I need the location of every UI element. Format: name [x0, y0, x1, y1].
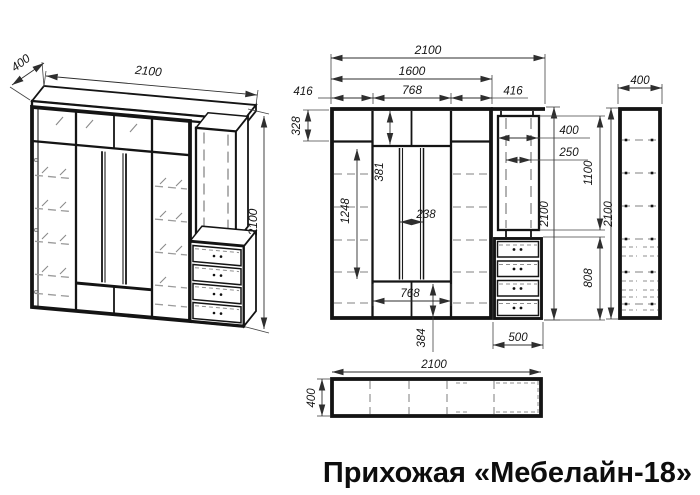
technical-drawing: 400 2100 2100 [0, 0, 700, 495]
blueprint-page: 400 2100 2100 [0, 0, 700, 495]
side-view: 400 2100 [603, 75, 662, 319]
dim-front-main-width: 1600 [399, 64, 426, 78]
front-drawer-unit [495, 239, 542, 319]
dim-front-mirror-col: 1248 [340, 198, 352, 224]
dim-iso-depth: 400 [8, 51, 33, 74]
dim-front-middle-top: 381 [374, 162, 386, 181]
page-title: Прихожая «Мебелайн-18» [323, 457, 692, 490]
front-view: 2100 1600 768 416 416 328 381 1248 238 7… [291, 43, 605, 352]
dim-top-depth: 400 [306, 388, 318, 408]
dim-iso-width: 2100 [133, 63, 162, 79]
iso-mirror-panel [196, 113, 248, 245]
dim-front-mirror-gap: 238 [415, 209, 436, 221]
dim-front-top-row: 328 [291, 116, 303, 136]
dim-front-drawer-width: 500 [508, 332, 528, 344]
dim-side-height: 2100 [603, 201, 615, 228]
dim-front-panel-width: 400 [559, 125, 579, 137]
dim-front-total-width: 2100 [414, 43, 442, 57]
dim-front-drawer-height: 808 [583, 268, 595, 288]
dim-front-right-col: 416 [503, 86, 523, 98]
dim-side-depth: 400 [630, 75, 650, 87]
dim-top-width: 2100 [420, 359, 447, 371]
top-view: 2100 400 [306, 359, 541, 416]
front-mirror-panel [498, 111, 539, 237]
iso-drawer-unit [190, 226, 256, 326]
dim-iso-height: 2100 [246, 208, 260, 236]
dim-front-middle-width: 768 [402, 83, 422, 97]
isometric-view: 400 2100 2100 [8, 51, 269, 333]
dim-front-bottom-middle: 768 [400, 288, 420, 300]
dim-front-panel-height: 1100 [583, 160, 595, 185]
dim-front-bottom-row: 384 [416, 328, 428, 347]
dim-front-left-col: 416 [293, 86, 313, 98]
dim-front-total-height: 2100 [539, 201, 551, 228]
dim-front-panel-offset: 250 [558, 147, 579, 159]
